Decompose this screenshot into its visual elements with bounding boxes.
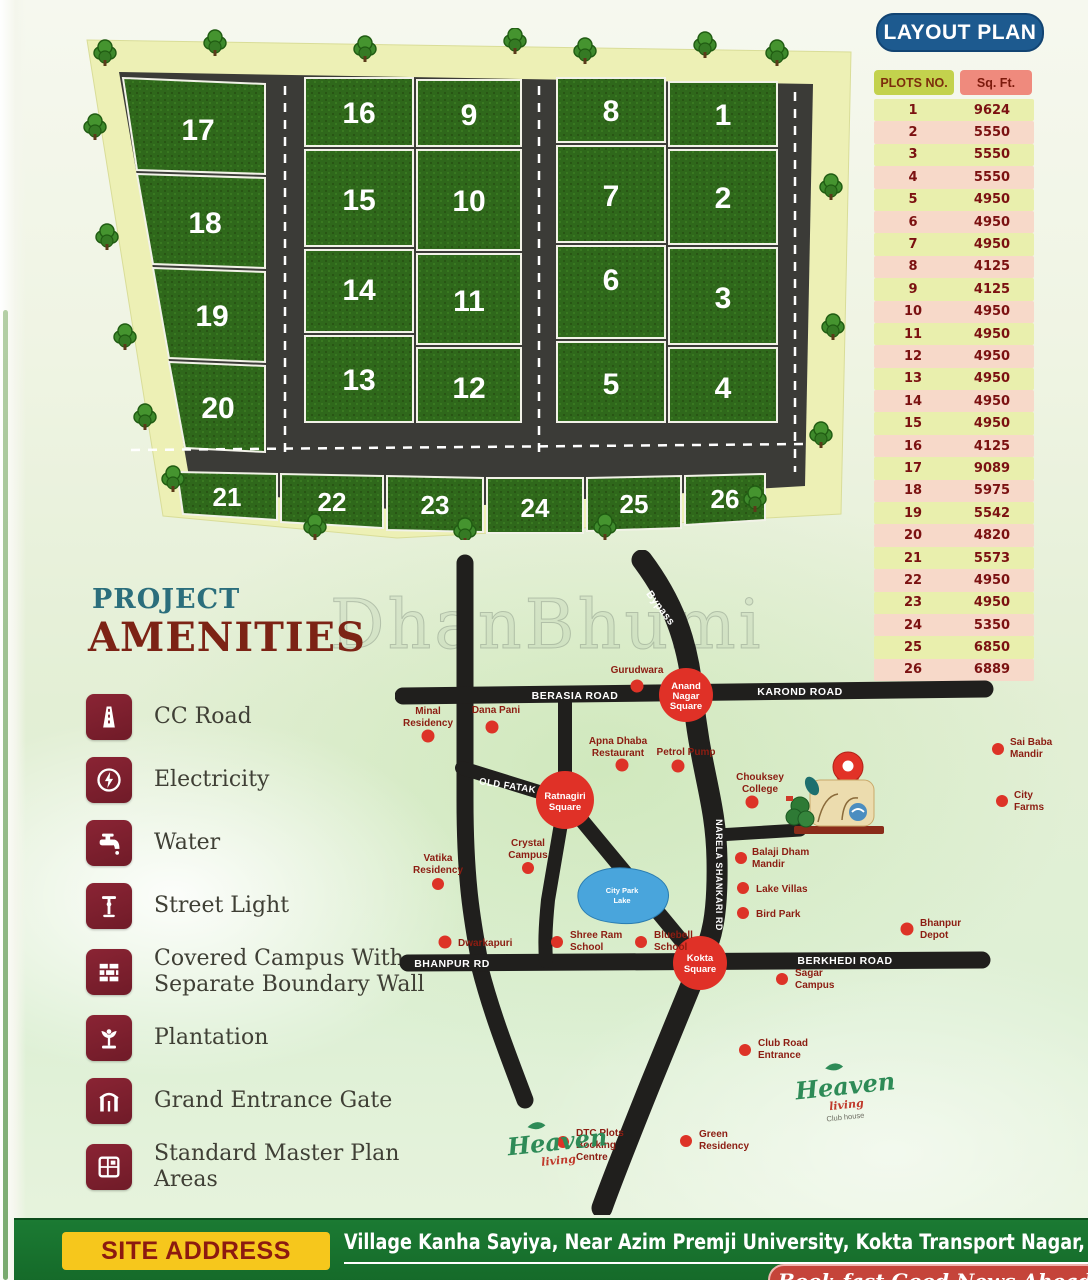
poi: Dwarkapuri — [439, 936, 513, 950]
tree-icon — [96, 224, 118, 250]
plot-no-cell: 19 — [874, 506, 952, 521]
poi-label: Restaurant — [592, 748, 645, 759]
plots-no-header: PLOTS NO. — [874, 70, 954, 95]
plot-3: 3 — [669, 248, 777, 344]
poi-label: Apna Dhaba — [589, 736, 648, 747]
plots-table-header: PLOTS NO. Sq. Ft. — [874, 70, 1034, 95]
poi-label: Petrol Pump — [657, 747, 716, 758]
sqft-cell: 4125 — [952, 282, 1032, 297]
poi-label: School — [654, 942, 688, 953]
poi-label: Green — [699, 1129, 728, 1140]
table-row: 144950 — [874, 390, 1034, 412]
poi: Shree RamSchool — [551, 930, 622, 953]
table-row: 124950 — [874, 345, 1034, 367]
plot-no-cell: 7 — [874, 237, 952, 252]
street-light-icon — [86, 883, 132, 929]
poi: SagarCampus — [776, 968, 835, 991]
flyer-page: 17 18 19 20 16 15 14 13 9 10 11 12 8 7 6… — [0, 0, 1088, 1280]
amenity-item: Water — [86, 820, 446, 866]
amenities-list: CC Road Electricity Water Street Light C… — [86, 694, 446, 1193]
plot-number: 21 — [213, 482, 242, 512]
sqft-cell: 4950 — [952, 237, 1032, 252]
site-logo-illustration — [786, 774, 884, 834]
plot-no-cell: 1 — [874, 103, 952, 118]
plot-no-cell: 5 — [874, 192, 952, 207]
sqft-cell: 4950 — [952, 192, 1032, 207]
plot-6: 6 — [557, 246, 665, 338]
plot-10: 10 — [417, 150, 521, 250]
poi-label: Shree Ram — [570, 930, 622, 941]
table-row: 204820 — [874, 524, 1034, 546]
amenity-item: Electricity — [86, 757, 446, 803]
poi: MinalResidency — [403, 706, 453, 743]
road-label: NARELA SHANKARI RD — [714, 819, 724, 931]
sqft-cell: 4950 — [952, 349, 1032, 364]
plot-number: 3 — [715, 282, 732, 315]
plot-22: 22 — [281, 474, 383, 528]
master-plan-icon — [86, 1144, 132, 1190]
junction-node: Anand Nagar Square — [659, 668, 713, 722]
plot-no-cell: 6 — [874, 215, 952, 230]
amenity-label: Street Light — [154, 893, 289, 919]
poi: Club RoadEntrance — [739, 1038, 808, 1061]
sqft-cell: 4950 — [952, 394, 1032, 409]
plot-21: 21 — [177, 472, 277, 520]
poi-label: City — [1014, 790, 1033, 801]
plot-no-cell: 16 — [874, 439, 952, 454]
sqft-cell: 4950 — [952, 416, 1032, 431]
table-row: 84125 — [874, 256, 1034, 278]
plot-number: 4 — [715, 372, 732, 405]
plot-no-cell: 3 — [874, 147, 952, 162]
table-row: 154950 — [874, 412, 1034, 434]
sqft-cell: 9624 — [952, 103, 1032, 118]
poi: BluebellSchool — [635, 930, 693, 953]
plot-no-cell: 15 — [874, 416, 952, 431]
plot-no-cell: 10 — [874, 304, 952, 319]
plot-number: 6 — [603, 264, 620, 297]
layout-plan-title-text: LAYOUT PLAN — [884, 21, 1037, 45]
plot-no-cell: 17 — [874, 461, 952, 476]
poi: GreenResidency — [680, 1129, 749, 1152]
map-pois: MinalResidency Dana Pani Gurudwara Chouk… — [403, 665, 1053, 1163]
table-row: 35550 — [874, 144, 1034, 166]
amenities-title-line1: PROJECT — [92, 584, 240, 615]
road-label: KAROND ROAD — [757, 686, 842, 698]
table-row: 45550 — [874, 166, 1034, 188]
sqft-cell: 5550 — [952, 125, 1032, 140]
poi: Apna DhabaRestaurant — [589, 736, 648, 772]
plot-24: 24 — [487, 478, 583, 533]
plot-5: 5 — [557, 342, 665, 422]
poi-label: Crystal — [511, 838, 545, 849]
entrance-gate-icon — [86, 1078, 132, 1124]
plot-18: 18 — [137, 174, 265, 268]
plot-no-cell: 18 — [874, 483, 952, 498]
plot-number: 24 — [521, 493, 550, 523]
poi-label: Sai Baba — [1010, 737, 1053, 748]
poi: Dana Pani — [472, 705, 521, 734]
poi-label: Entrance — [758, 1050, 801, 1061]
amenities-title-line2: AMENITIES — [88, 614, 366, 661]
plantation-icon — [86, 1015, 132, 1061]
plot-7: 7 — [557, 146, 665, 242]
footer-ribbon-text: Book fast Good News Ahead — [778, 1269, 1088, 1280]
sqft-cell: 5550 — [952, 147, 1032, 162]
poi: Bird Park — [737, 907, 801, 920]
plot-no-cell: 2 — [874, 125, 952, 140]
table-row: 54950 — [874, 189, 1034, 211]
poi-label: Bhanpur — [920, 918, 961, 929]
poi-label: Gurudwara — [611, 665, 664, 676]
plot-13: 13 — [305, 336, 413, 422]
plot-number: 17 — [181, 114, 214, 147]
resort-logo-sub: living — [541, 1152, 577, 1169]
resort-logo: Heaven living Club house — [792, 1057, 899, 1126]
amenity-label: Grand Entrance Gate — [154, 1088, 392, 1114]
table-row: 179089 — [874, 457, 1034, 479]
table-row: 114950 — [874, 323, 1034, 345]
table-row: 195542 — [874, 502, 1034, 524]
resort-logo: Heaven living — [504, 1115, 610, 1172]
road-label: BHANPUR RD — [414, 958, 490, 970]
plot-number: 25 — [620, 489, 649, 519]
sqft-cell: 4125 — [952, 259, 1032, 274]
plot-4: 4 — [669, 348, 777, 422]
poi-label: Minal — [415, 706, 441, 717]
poi-label: Dana Pani — [472, 705, 521, 716]
amenity-label: Electricity — [154, 767, 269, 793]
junction-label: Kokta — [687, 953, 714, 964]
poi-label: Club Road — [758, 1038, 808, 1049]
sqft-cell: 4950 — [952, 371, 1032, 386]
site-address-badge: SITE ADDRESS — [62, 1232, 330, 1270]
road-icon — [86, 694, 132, 740]
plot-number: 26 — [711, 484, 740, 514]
sqft-cell: 5975 — [952, 483, 1032, 498]
poi-label: Residency — [699, 1141, 749, 1152]
table-row: 164125 — [874, 435, 1034, 457]
table-row: 94125 — [874, 278, 1034, 300]
poi-label: Mandir — [1010, 749, 1043, 760]
poi: ChoukseyCollege — [736, 772, 784, 809]
layout-plan-drawing: 17 18 19 20 16 15 14 13 9 10 11 12 8 7 6… — [65, 28, 855, 540]
plot-no-cell: 14 — [874, 394, 952, 409]
plot-number: 20 — [201, 392, 234, 425]
road-label: BERKHEDI ROAD — [797, 955, 892, 967]
lake: City Park Lake — [578, 868, 669, 924]
amenity-label: Water — [154, 830, 220, 856]
water-tap-icon — [86, 820, 132, 866]
poi: Lake Villas — [737, 882, 808, 895]
poi-label: Sagar — [795, 968, 823, 979]
amenity-item: Grand Entrance Gate — [86, 1078, 446, 1124]
plot-number: 16 — [342, 97, 375, 130]
amenity-item: Street Light — [86, 883, 446, 929]
plot-19: 19 — [153, 268, 265, 362]
junction-label: Square — [684, 964, 716, 975]
plot-number: 11 — [453, 285, 485, 318]
map-roads — [403, 560, 985, 1208]
table-row: 104950 — [874, 301, 1034, 323]
plot-no-cell: 12 — [874, 349, 952, 364]
site-address-text: Village Kanha Sayiya, Near Azim Premji U… — [344, 1230, 1088, 1264]
plot-no-cell: 8 — [874, 259, 952, 274]
poi-label: Bluebell — [654, 930, 693, 941]
plot-number: 15 — [342, 184, 375, 217]
sqft-cell: 4125 — [952, 439, 1032, 454]
poi-label: Chouksey — [736, 772, 784, 783]
poi-label: School — [570, 942, 604, 953]
plot-16: 16 — [305, 78, 413, 146]
poi-label: Bird Park — [756, 909, 801, 920]
sqft-cell: 4820 — [952, 528, 1032, 543]
road-label: BERASIA ROAD — [532, 690, 619, 702]
plot-number: 22 — [318, 487, 347, 517]
junction-label: Square — [670, 701, 702, 712]
table-row: 64950 — [874, 211, 1034, 233]
plot-number: 9 — [461, 99, 478, 132]
plot-number: 14 — [342, 274, 376, 307]
plot-number: 5 — [603, 368, 620, 401]
sqft-cell: 4950 — [952, 327, 1032, 342]
plot-14: 14 — [305, 250, 413, 332]
poi-label: Campus — [795, 980, 835, 991]
amenity-item: Standard Master Plan Areas — [86, 1141, 446, 1193]
junction-label: Square — [549, 802, 581, 813]
sqft-cell: 5550 — [952, 170, 1032, 185]
sqft-cell: 4950 — [952, 304, 1032, 319]
poi-label: Residency — [403, 718, 453, 729]
sqft-cell: 5542 — [952, 506, 1032, 521]
sqft-header: Sq. Ft. — [960, 70, 1032, 95]
poi-label: Mandir — [752, 859, 785, 870]
plot-17: 17 — [123, 78, 265, 174]
poi: BhanpurDepot — [901, 918, 962, 941]
plot-number: 7 — [603, 180, 620, 213]
sqft-cell: 4950 — [952, 215, 1032, 230]
plot-number: 8 — [603, 95, 620, 128]
location-map: BERASIA ROAD KAROND ROAD Bypass NARELA S… — [395, 550, 1075, 1215]
plot-no-cell: 4 — [874, 170, 952, 185]
electricity-icon — [86, 757, 132, 803]
table-row: 25550 — [874, 121, 1034, 143]
poi: VatikaResidency — [413, 853, 463, 890]
plot-no-cell: 11 — [874, 327, 952, 342]
plot-2: 2 — [669, 150, 777, 244]
layout-plan-title: LAYOUT PLAN — [876, 13, 1044, 52]
plot-8: 8 — [557, 78, 665, 142]
poi-label: Depot — [920, 930, 949, 941]
table-row: 134950 — [874, 368, 1034, 390]
amenity-label: CC Road — [154, 704, 252, 730]
poi-label: College — [742, 784, 779, 795]
amenity-item: Plantation — [86, 1015, 446, 1061]
poi: CrystalCampus — [508, 838, 548, 874]
amenity-item: Covered Campus With Separate Boundary Wa… — [86, 946, 446, 998]
amenity-item: CC Road — [86, 694, 446, 740]
junction-label: Ratnagiri — [544, 791, 585, 802]
plot-12: 12 — [417, 348, 521, 422]
poi-label: Vatika — [424, 853, 453, 864]
table-row: 185975 — [874, 480, 1034, 502]
plot-number: 13 — [342, 364, 375, 397]
poi: CityFarms — [996, 790, 1044, 813]
poi-label: Lake Villas — [756, 884, 808, 895]
plot-number: 19 — [195, 300, 228, 333]
amenity-label: Plantation — [154, 1025, 268, 1051]
poi-label: Campus — [508, 850, 548, 861]
plot-number: 18 — [188, 207, 221, 240]
footer-ribbon: Book fast Good News Ahead — [768, 1264, 1088, 1280]
site-address-wrap: Village Kanha Sayiya, Near Azim Premji U… — [344, 1230, 1088, 1255]
poi: Sai BabaMandir — [992, 737, 1053, 760]
plot-number: 2 — [715, 182, 732, 215]
junction-node: Ratnagiri Square — [536, 771, 594, 829]
plot-no-cell: 20 — [874, 528, 952, 543]
plot-20: 20 — [169, 362, 265, 452]
plot-1: 1 — [669, 82, 777, 146]
plot-no-cell: 9 — [874, 282, 952, 297]
poi-label: Farms — [1014, 802, 1044, 813]
table-row: 74950 — [874, 233, 1034, 255]
boundary-wall-icon — [86, 949, 132, 995]
poi: Balaji DhamMandir — [735, 847, 809, 870]
lake-label: Lake — [613, 896, 630, 905]
plot-no-cell: 13 — [874, 371, 952, 386]
plot-number: 10 — [452, 185, 485, 218]
plot-9: 9 — [417, 80, 521, 146]
plot-number: 23 — [421, 490, 450, 520]
poi-label: Dwarkapuri — [458, 938, 513, 949]
sqft-cell: 9089 — [952, 461, 1032, 476]
plot-15: 15 — [305, 150, 413, 246]
plot-number: 12 — [452, 372, 485, 405]
plot-11: 11 — [417, 254, 521, 344]
poi-label: Balaji Dham — [752, 847, 809, 858]
page-left-green-line — [3, 310, 8, 1280]
table-row: 19624 — [874, 99, 1034, 121]
plot-number: 1 — [715, 99, 732, 132]
poi-label: Residency — [413, 865, 463, 876]
lake-label: City Park — [606, 886, 639, 895]
